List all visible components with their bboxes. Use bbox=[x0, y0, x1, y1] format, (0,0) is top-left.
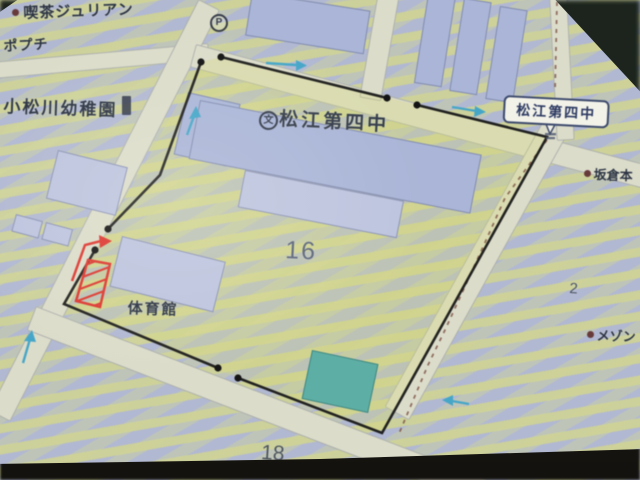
poi-dot bbox=[12, 9, 19, 16]
map-photo: P 文 喫茶ジュリアン ポプチ 小松川幼稚園 松江第四中 体育館 坂倉本 メゾン… bbox=[0, 0, 640, 480]
label-kindergarten: 小松川幼稚園 bbox=[3, 92, 118, 121]
bus-stop-sign: 松江第四中 bbox=[503, 95, 610, 129]
poi-dot bbox=[584, 170, 591, 177]
label-maison: メゾン bbox=[596, 325, 636, 345]
parking-icon: P bbox=[210, 14, 228, 32]
label-block-2: 2 bbox=[569, 280, 579, 298]
map-content: P 文 喫茶ジュリアン ポプチ 小松川幼稚園 松江第四中 体育館 坂倉本 メゾン… bbox=[0, 0, 640, 480]
map-symbol-icon bbox=[122, 96, 131, 115]
label-cafe-julian: 喫茶ジュリアン bbox=[23, 0, 134, 23]
school-symbol-glyph: 文 bbox=[263, 115, 274, 127]
label-block-16: 16 bbox=[284, 236, 317, 267]
label-block-18: 18 bbox=[260, 441, 285, 467]
label-school: 松江第四中 bbox=[279, 104, 390, 137]
bus-stop-sign-text: 松江第四中 bbox=[516, 100, 597, 124]
label-sakakura: 坂倉本 bbox=[593, 164, 633, 184]
poi-dot bbox=[587, 331, 594, 338]
label-gym: 体育館 bbox=[127, 297, 179, 320]
label-popuchi: ポプチ bbox=[3, 34, 49, 56]
